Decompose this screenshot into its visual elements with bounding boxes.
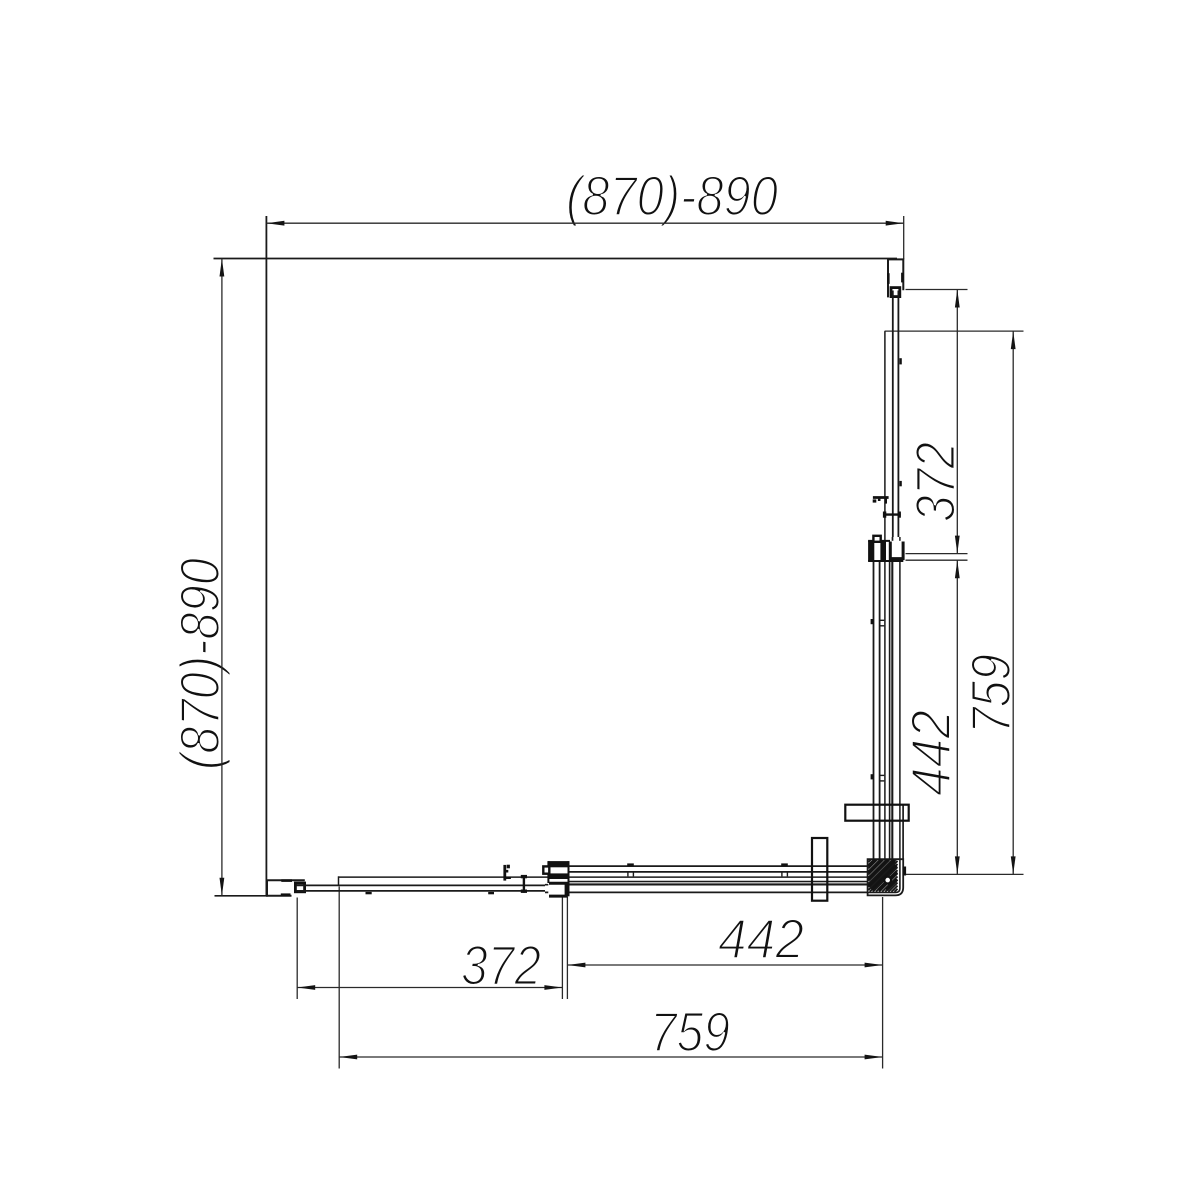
- svg-text:442: 442: [718, 907, 804, 970]
- svg-text:442: 442: [899, 710, 962, 796]
- svg-text:759: 759: [650, 1000, 730, 1063]
- svg-text:(870)-890: (870)-890: [566, 164, 778, 227]
